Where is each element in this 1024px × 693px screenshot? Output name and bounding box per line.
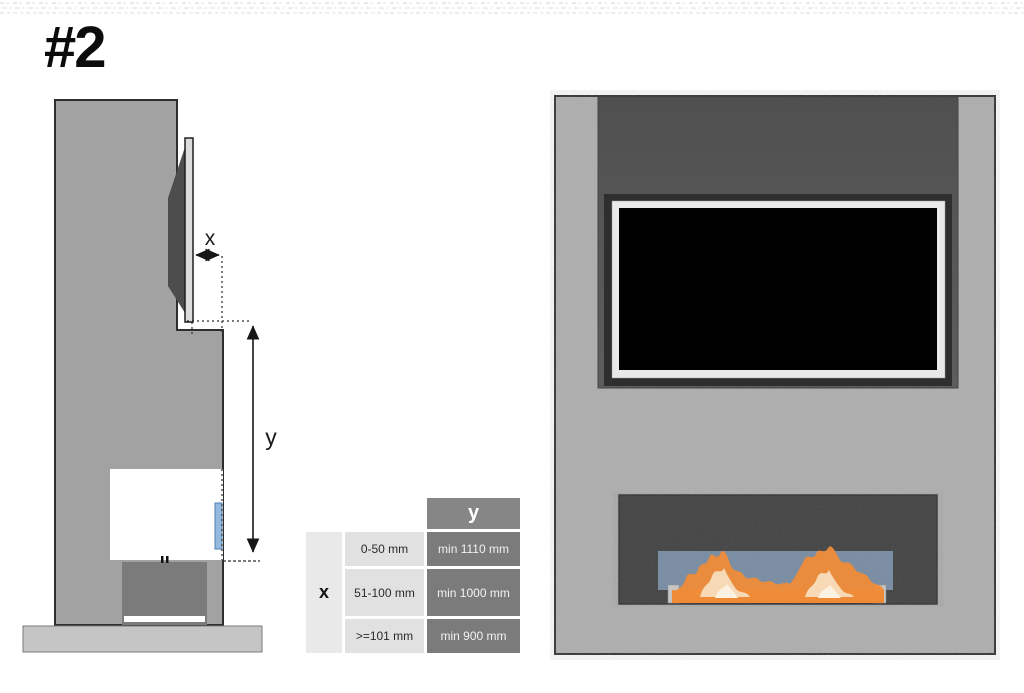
table-cell-y-min-1: min 1110 mm [427,532,520,566]
glass-pane-side [215,503,222,549]
front-view-diagram [550,90,1000,660]
table-cell-x-range-1: 0-50 mm [345,532,424,566]
firebox-lower-strip [124,616,205,622]
side-view-diagram: x y [20,90,310,660]
firebox-opening-side [110,469,223,560]
floor-base [23,626,262,652]
burner-mark-right [166,556,169,563]
table-col-header-y: y [427,498,520,529]
x-dimension-label: x [205,227,216,250]
y-dimension-label: y [265,424,277,450]
burner-mark-left [161,556,164,563]
clearance-table: y x 0-50 mm min 1110 mm 51-100 mm min 10… [306,498,520,653]
page: { "page": { "label": "#2" }, "side_view"… [0,0,1024,693]
top-strip-fill [0,0,1024,17]
table-row-header-x: x [306,532,342,653]
table-cell-y-min-2: min 1000 mm [427,569,520,616]
table-cell-x-range-3: >=101 mm [345,619,424,653]
tv-side-panel [185,138,193,322]
table-cell-y-min-3: min 900 mm [427,619,520,653]
page-label: #2 [44,14,105,81]
tv-screen [619,208,937,370]
top-dotted-strip [0,0,1024,18]
table-cell-x-range-2: 51-100 mm [345,569,424,616]
firebox-lower-side [122,562,207,625]
